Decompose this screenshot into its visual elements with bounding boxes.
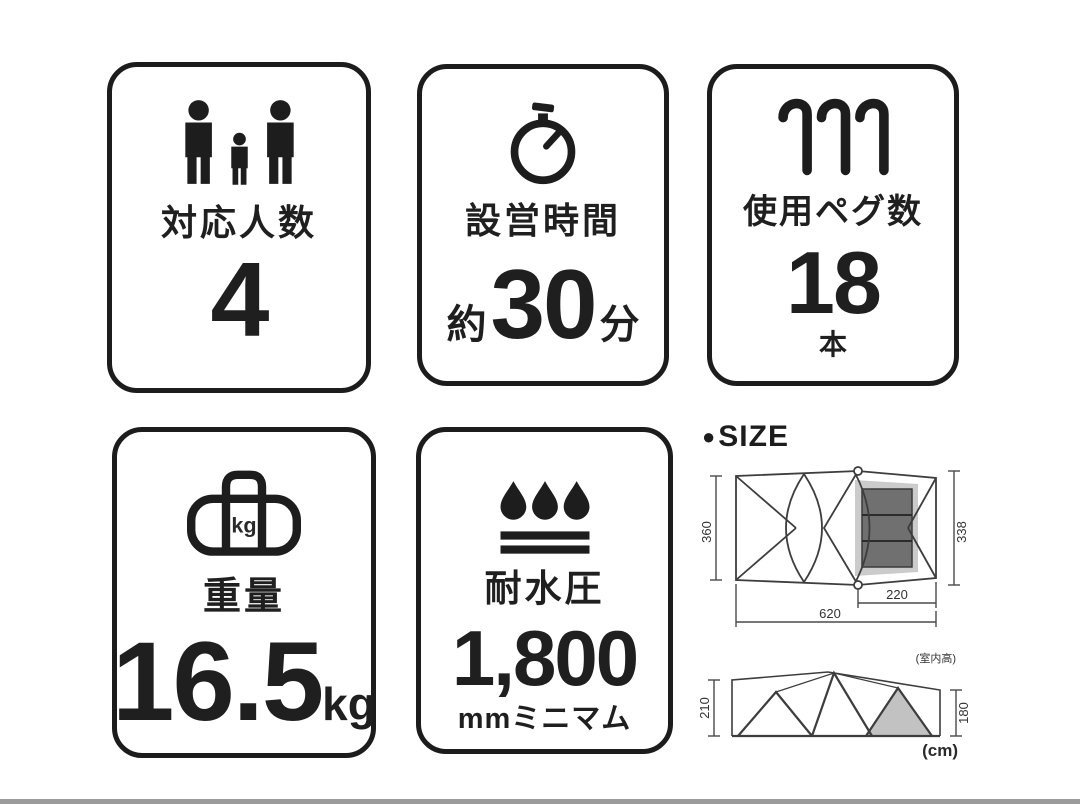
weight-unit: kg <box>322 681 376 727</box>
side-view-shaded-room <box>866 688 932 736</box>
spec-card-pegs: 使用ペグ数 18 本 <box>707 64 959 386</box>
side-view-dim-right: 180 <box>956 702 971 724</box>
people-icon <box>147 97 332 189</box>
tent-top-view-diagram: 360 338 220 620 <box>700 456 988 632</box>
pole-hub-top <box>854 467 862 475</box>
spec-card-water-pressure: 耐水圧 1,800 mmミニマム <box>416 427 673 754</box>
capacity-label: 対応人数 <box>161 205 317 241</box>
setup-time-suffix: 分 <box>600 305 640 345</box>
pegs-icon <box>771 95 896 181</box>
setup-time-label: 設営時間 <box>465 203 621 239</box>
top-view-dim-left: 360 <box>700 521 714 543</box>
dimension-lines <box>710 471 960 627</box>
water-pressure-unit: mmミニマム <box>458 705 632 734</box>
top-view-dim-inner-width: 220 <box>886 587 908 602</box>
bottom-divider-bar <box>0 799 1080 804</box>
pegs-value: 18 <box>786 239 880 327</box>
capacity-value: 4 <box>211 247 268 353</box>
setup-time-prefix: 約 <box>446 305 486 345</box>
top-view-dim-total-width: 620 <box>819 606 841 621</box>
size-title: SIZE <box>718 420 789 454</box>
inner-height-note: (室内高) <box>916 651 956 665</box>
side-view-dim-left: 210 <box>700 697 712 719</box>
spec-card-capacity: 対応人数 4 <box>107 62 371 393</box>
tent-side-view-diagram: 210 180 (室内高) (cm) <box>700 648 988 760</box>
top-view-dim-right: 338 <box>954 521 969 543</box>
pegs-unit: 本 <box>819 331 847 359</box>
duffel-bag-icon: kg <box>178 464 310 560</box>
bullet-icon: ● <box>702 424 715 450</box>
size-heading: ● SIZE <box>702 420 789 454</box>
weight-value: 16.5 <box>112 626 322 738</box>
pole-hub-bottom <box>854 581 862 589</box>
water-pressure-label: 耐水圧 <box>485 570 605 607</box>
bag-kg-text: kg <box>231 512 256 537</box>
water-pressure-value: 1,800 <box>452 619 637 697</box>
weight-label: 重量 <box>203 578 285 616</box>
setup-time-value: 30 <box>490 255 595 353</box>
stopwatch-icon <box>497 97 589 189</box>
unit-note: (cm) <box>922 741 958 760</box>
water-drops-icon <box>487 460 603 556</box>
pegs-label: 使用ペグ数 <box>743 195 923 229</box>
spec-card-weight: kg 重量 16.5 kg <box>112 427 376 758</box>
spec-card-setup-time: 設営時間 約 30 分 <box>417 64 669 386</box>
